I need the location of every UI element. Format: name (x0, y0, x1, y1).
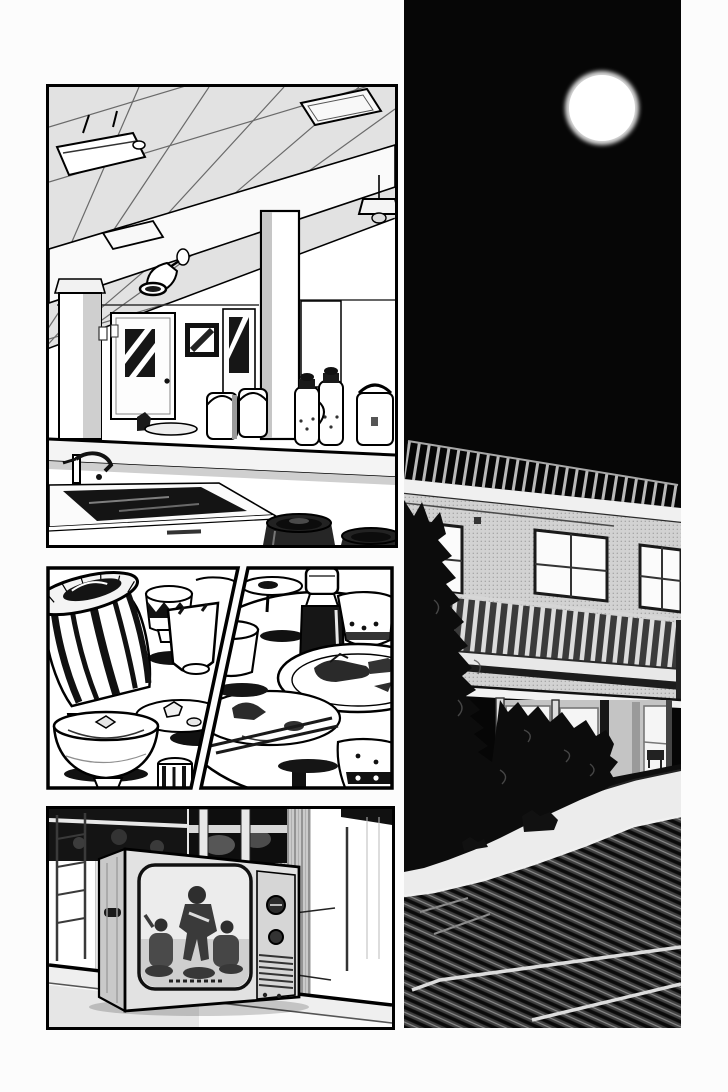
panel-strip-dishes (46, 566, 394, 790)
panel-tv (46, 806, 395, 1030)
tray (145, 423, 197, 435)
panel-night-building (404, 0, 681, 1028)
tv-screen (141, 867, 249, 987)
trash-bins (263, 514, 395, 545)
tv-drawing (49, 809, 392, 1027)
panel-cafeteria (46, 84, 398, 548)
door-left (111, 313, 175, 419)
manga-page (0, 0, 728, 1092)
tv-dial-small (269, 930, 283, 944)
switch-plate (111, 325, 118, 337)
television-set (99, 849, 299, 1011)
water-thermoses (295, 367, 393, 445)
full-moon (565, 71, 639, 145)
switch-plate (99, 327, 107, 340)
pattern-bowl-top (338, 592, 394, 646)
pattern-bowl-bottom (338, 739, 394, 790)
picture-frame (185, 323, 219, 357)
dishes-drawing (46, 566, 394, 790)
cafeteria-drawing (49, 87, 395, 545)
night-drawing (404, 0, 681, 1028)
overturned-cup (168, 603, 218, 674)
rice-cookers (207, 389, 267, 439)
facade-vent (474, 517, 481, 524)
striped-cup (158, 758, 192, 790)
left-column (55, 279, 105, 439)
